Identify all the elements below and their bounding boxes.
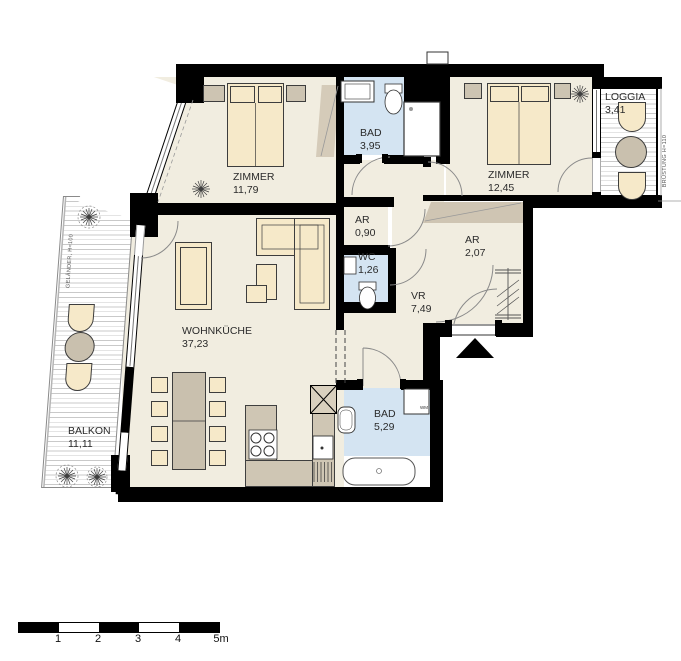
wall-segment — [496, 323, 533, 337]
wall-segment — [430, 380, 443, 500]
room-label-zimmer1: ZIMMER11,79 — [233, 171, 274, 197]
scale-bar: 1 2 3 4 5m — [18, 620, 238, 654]
scale-segment — [179, 623, 219, 632]
sofa — [294, 218, 330, 310]
daybed-inner — [180, 247, 207, 305]
loggia-door-sill — [592, 157, 601, 195]
wall-segment — [384, 155, 424, 164]
scale-label: 3 — [135, 633, 141, 645]
balcony-table — [64, 332, 96, 362]
scale-label: 2 — [95, 633, 101, 645]
loggia-table — [615, 136, 647, 168]
nightstand — [554, 83, 571, 99]
scale-label: 4 — [175, 633, 181, 645]
wall-segment — [336, 302, 396, 313]
balcony-chair — [64, 363, 92, 391]
pillow — [230, 86, 255, 103]
wall-segment — [145, 203, 344, 215]
chair — [151, 426, 168, 442]
pillow — [490, 86, 519, 102]
pillow — [258, 86, 282, 103]
window-midline — [596, 90, 597, 156]
shaft-box — [310, 385, 337, 414]
wall-segment — [436, 155, 450, 164]
scale-label: 1 — [55, 633, 61, 645]
entrance-arrow-icon — [456, 338, 494, 358]
balcony-chair — [67, 304, 95, 332]
wall-segment — [592, 77, 604, 89]
room-label-loggia: LOGGIA3,41 — [605, 91, 645, 117]
wall-segment — [180, 64, 604, 77]
pillow — [521, 86, 549, 102]
scale-segment — [139, 623, 179, 632]
scale-bar-segments — [18, 622, 220, 633]
wall-segment — [523, 202, 533, 335]
room-label-bad1: BAD3,95 — [360, 127, 382, 153]
nightstand — [286, 85, 306, 102]
chair — [209, 401, 226, 417]
chair — [151, 377, 168, 393]
wall-segment — [336, 380, 363, 390]
room-label-balkon: BALKON11,11 — [68, 425, 111, 451]
wall-segment — [336, 197, 394, 207]
wall-segment — [336, 155, 360, 164]
chair — [151, 450, 168, 466]
dining-table — [172, 372, 206, 470]
room-label-bad2: BAD5,29 — [374, 408, 396, 434]
nightstand — [464, 83, 482, 99]
washing-machine-label: WM — [404, 405, 429, 410]
wall-segment — [423, 195, 523, 201]
kitchen-counter — [312, 413, 335, 487]
wall-segment — [401, 380, 430, 390]
wall-segment — [116, 470, 127, 495]
loggia-chair — [618, 172, 646, 200]
nightstand — [203, 85, 225, 102]
room-label-ar2: AR2,07 — [465, 234, 485, 260]
wall-segment — [596, 77, 662, 89]
wall-segment — [136, 203, 147, 226]
chair — [151, 401, 168, 417]
scale-segment — [99, 623, 139, 632]
loggia-parapet-label: BRÜSTUNG H=110 — [662, 123, 668, 199]
room-label-wc: WC1,26 — [358, 251, 378, 277]
room-label-vr: VR7,49 — [411, 290, 431, 316]
scale-label: 5m — [213, 633, 228, 645]
floor-plan: ZIMMER11,79 BAD3,95 ZIMMER12,45 LOGGIA3,… — [0, 0, 681, 661]
bathtub-zone — [338, 456, 430, 487]
wall-segment — [440, 64, 450, 160]
wall-segment — [423, 157, 431, 167]
ceiling-strip — [423, 202, 523, 223]
wall-segment — [118, 487, 443, 502]
room-label-zimmer2: ZIMMER12,45 — [488, 169, 529, 195]
scale-segment — [59, 623, 99, 632]
chair — [209, 426, 226, 442]
wall-segment — [523, 195, 662, 208]
chair — [209, 377, 226, 393]
room-label-ar1: AR0,90 — [355, 214, 375, 240]
stool — [246, 285, 267, 303]
room-label-wohnkueche: WOHNKÜCHE37,23 — [182, 325, 252, 351]
scale-segment — [19, 623, 59, 632]
chair — [209, 450, 226, 466]
